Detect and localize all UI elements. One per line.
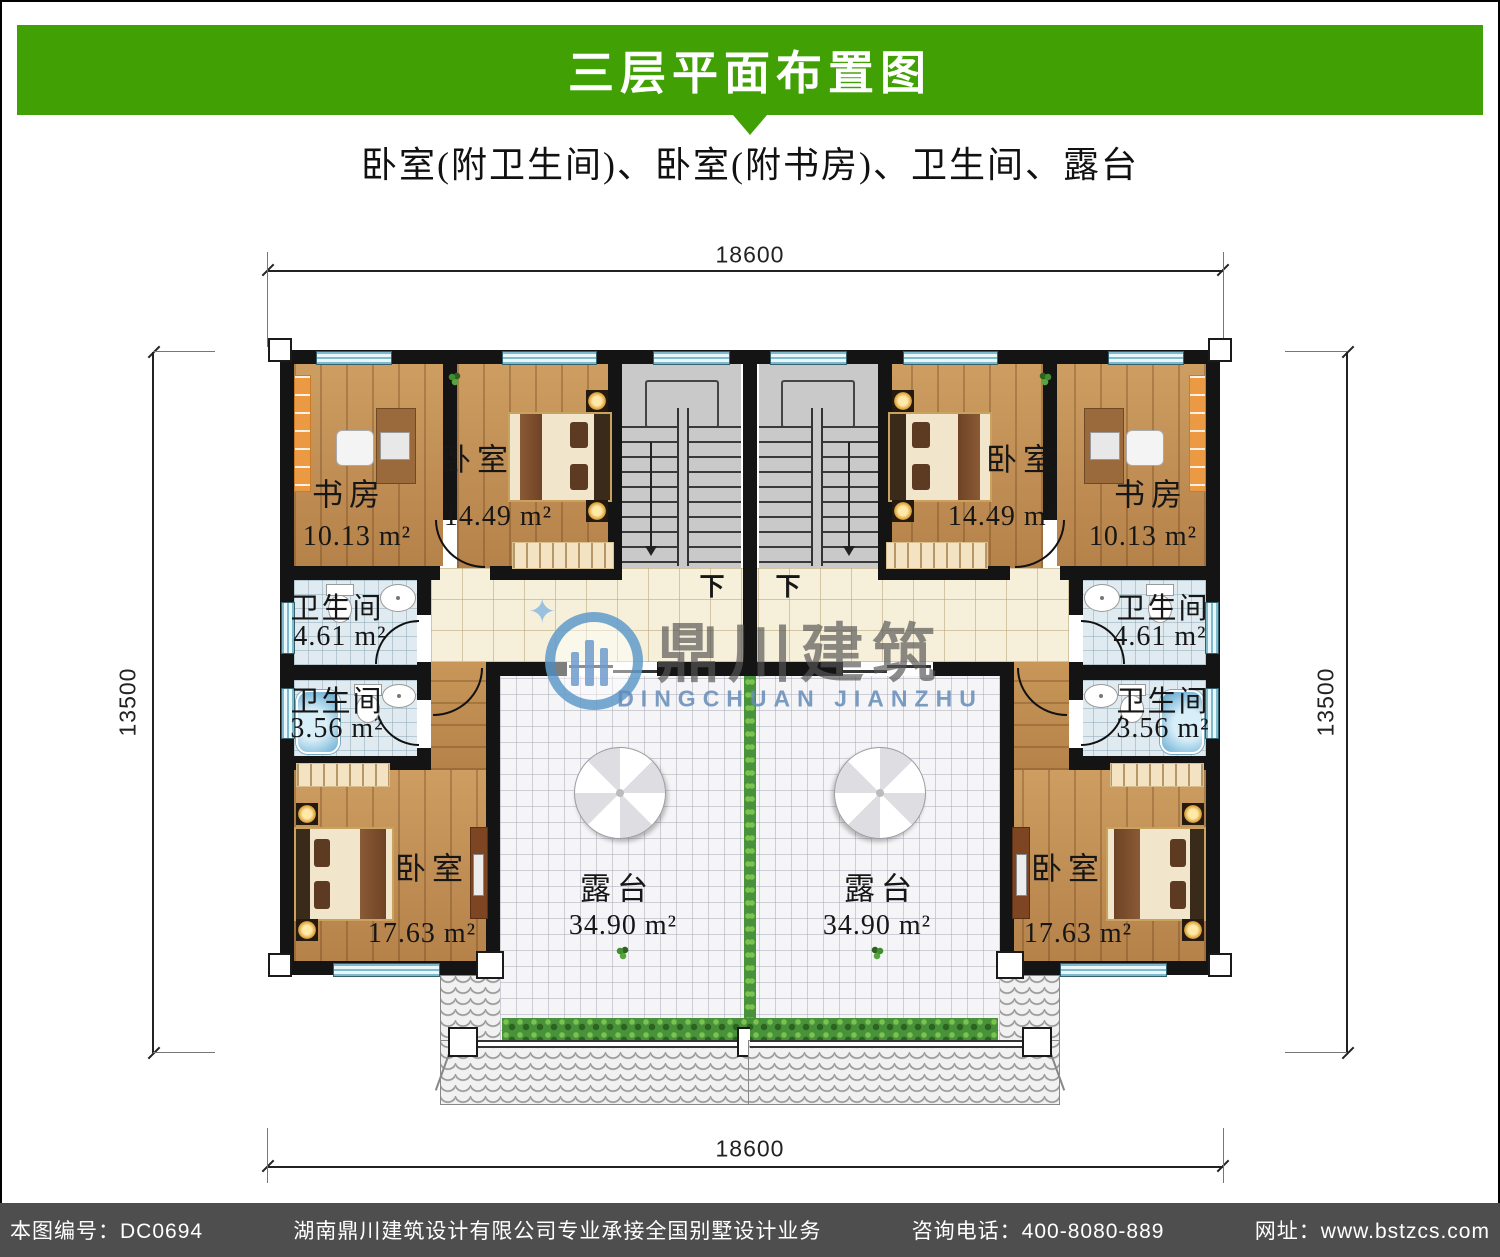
dim-tick — [148, 1047, 161, 1060]
room-area-bath-small-right: 3.56 m² — [1116, 713, 1209, 745]
bed-headboard — [1190, 829, 1204, 919]
room-area-bath-small-left: 3.56 m² — [290, 713, 383, 745]
sliding-door — [569, 665, 613, 668]
wall-lamp-icon — [296, 919, 318, 941]
computer-icon — [380, 432, 410, 460]
stair-down-label-right: 下 — [775, 567, 800, 603]
dim-tick — [148, 346, 161, 359]
bed-blanket — [1114, 829, 1140, 919]
window — [333, 963, 440, 977]
window — [653, 351, 730, 365]
wall-outer-left — [1206, 350, 1220, 975]
room-label-terrace-right: 露台 — [844, 864, 918, 909]
plant-icon — [870, 946, 884, 960]
pillow — [912, 464, 930, 490]
wall-study-bottom — [280, 566, 440, 580]
room-label-study-left: 书房 — [312, 470, 386, 515]
tv-icon — [473, 854, 484, 896]
dim-ext — [1223, 252, 1224, 347]
bed — [294, 827, 394, 921]
plant-icon — [616, 946, 630, 960]
terrace-railing — [750, 1040, 1045, 1048]
wall-unit-divider — [750, 350, 757, 676]
pillow — [912, 422, 930, 448]
bed-blanket — [520, 414, 542, 500]
window — [1108, 351, 1184, 365]
dim-line-bottom — [267, 1166, 1223, 1168]
hallway-floor — [757, 568, 1069, 662]
bed — [1106, 827, 1206, 921]
wall-bath-right — [417, 566, 431, 615]
sink-icon — [1084, 684, 1118, 708]
dim-ext — [1285, 1052, 1347, 1053]
dim-left-value: 13500 — [115, 668, 142, 737]
wall-lamp-icon — [892, 390, 914, 412]
pillow — [570, 464, 588, 490]
terrace-floor — [750, 662, 1000, 1042]
bed-headboard — [594, 414, 610, 500]
title-banner: 三层平面布置图 — [17, 25, 1483, 115]
room-area-bedroom-bottom-right: 17.63 m² — [1024, 918, 1132, 950]
room-label-bedroom-top-right: 卧室 — [986, 435, 1060, 480]
corner-post — [476, 951, 504, 979]
dim-ext — [1223, 1128, 1224, 1183]
wall-lamp-icon — [1182, 803, 1204, 825]
plant-icon — [1038, 372, 1052, 386]
window — [903, 351, 998, 365]
rug — [886, 542, 988, 569]
pillow — [1170, 881, 1186, 909]
computer-icon — [1090, 432, 1120, 460]
terrace-hedge-divider — [750, 665, 756, 1042]
bed-blanket — [360, 829, 386, 919]
stair-down-arrowhead — [645, 546, 657, 556]
room-label-bedroom-top-left: 卧室 — [440, 435, 514, 480]
dim-bottom-value: 18600 — [716, 1136, 785, 1163]
corner-post — [996, 951, 1024, 979]
room-area-bath-large-left: 4.61 m² — [293, 621, 386, 653]
page-subtitle: 卧室(附卫生间)、卧室(附书房)、卫生间、露台 — [361, 136, 1139, 188]
wall-study-bottom — [1060, 566, 1220, 580]
stair-down-arrow — [650, 442, 652, 546]
terrace-floor — [500, 662, 750, 1042]
wall-lamp-icon — [586, 390, 608, 412]
terrace-post — [1022, 1027, 1052, 1057]
bookshelf — [294, 375, 311, 492]
window — [1060, 963, 1167, 977]
dim-tick — [1342, 346, 1355, 359]
footer-company: 湖南鼎川建筑设计有限公司专业承接全国别墅设计业务 — [293, 1215, 821, 1245]
plan-canvas — [280, 350, 1220, 1105]
window — [316, 351, 392, 365]
bookshelf — [1189, 375, 1206, 492]
rug — [1110, 763, 1204, 787]
terrace-hedge-bottom — [750, 1018, 998, 1040]
dim-line-right — [1346, 352, 1348, 1053]
dim-right-value: 13500 — [1313, 668, 1340, 737]
room-area-bedroom-top-right: 14.49 m² — [948, 501, 1056, 533]
footer-sheet-no: 本图编号：DC0694 — [10, 1215, 203, 1245]
stair-down-arrow — [848, 442, 850, 546]
chair — [1126, 430, 1164, 466]
wall-terrace-top — [657, 662, 743, 676]
sink-icon — [380, 584, 416, 612]
floor-plan-sheet: 三层平面布置图 卧室(附卫生间)、卧室(附书房)、卫生间、露台 18600 18… — [0, 0, 1500, 1257]
room-label-bedroom-bottom-left: 卧室 — [395, 844, 469, 889]
terrace-hedge-bottom — [502, 1018, 750, 1040]
dim-ext — [267, 252, 268, 347]
dim-top-value: 18600 — [716, 242, 785, 269]
wall-lamp-icon — [1182, 919, 1204, 941]
pillow — [314, 839, 330, 867]
wall-terrace-side — [1000, 662, 1014, 975]
room-label-study-right: 书房 — [1114, 470, 1188, 515]
footer-bar: 本图编号：DC0694 湖南鼎川建筑设计有限公司专业承接全国别墅设计业务 咨询电… — [0, 1203, 1500, 1257]
wall-outer-left — [280, 350, 294, 975]
pillow — [570, 422, 588, 448]
room-label-terrace-left: 露台 — [580, 864, 654, 909]
dim-ext — [153, 351, 215, 352]
bed — [508, 412, 612, 502]
wall-terrace-top — [757, 662, 843, 676]
pillow — [314, 881, 330, 909]
room-area-bedroom-top-left: 14.49 m² — [444, 501, 552, 533]
sink-icon — [382, 684, 416, 708]
corner-post — [268, 953, 292, 977]
sliding-door — [887, 665, 931, 668]
roof-eave — [440, 1040, 752, 1105]
terrace-railing — [455, 1040, 750, 1048]
stair-down-label-left: 下 — [699, 567, 724, 603]
room-area-terrace-right: 34.90 m² — [823, 910, 931, 942]
window — [502, 351, 597, 365]
room-area-study-right: 10.13 m² — [1089, 521, 1197, 553]
umbrella-icon — [574, 747, 666, 839]
bed-headboard — [296, 829, 310, 919]
stair-rail — [811, 408, 823, 566]
wall-terrace-side — [486, 662, 500, 975]
tv-icon — [1016, 854, 1027, 896]
sliding-door — [843, 670, 887, 673]
rug — [512, 542, 614, 569]
wall-terrace-top — [933, 662, 1000, 676]
sliding-door — [613, 670, 657, 673]
footer-website: 网址：www.bstzcs.com — [1255, 1215, 1490, 1245]
rug — [296, 763, 390, 787]
chair — [336, 430, 374, 466]
terrace-post — [448, 1027, 478, 1057]
bed — [888, 412, 992, 502]
dim-ext — [1285, 351, 1347, 352]
wall-terrace-top — [500, 662, 567, 676]
pillow — [1170, 839, 1186, 867]
dim-line-left — [152, 352, 154, 1053]
bed-blanket — [958, 414, 980, 500]
umbrella-icon — [834, 747, 926, 839]
window — [770, 351, 847, 365]
room-area-bath-large-right: 4.61 m² — [1113, 621, 1206, 653]
dim-tick — [1342, 1047, 1355, 1060]
roof-eave — [748, 1040, 1060, 1105]
corner-post — [1208, 953, 1232, 977]
plant-icon — [448, 372, 462, 386]
stair-down-arrowhead — [843, 546, 855, 556]
dim-line-top — [267, 270, 1223, 272]
wall-bath-right — [1069, 566, 1083, 615]
wall-lamp-icon — [296, 803, 318, 825]
corner-post — [1208, 338, 1232, 362]
room-area-bedroom-bottom-left: 17.63 m² — [368, 918, 476, 950]
corner-post — [268, 338, 292, 362]
room-area-study-left: 10.13 m² — [303, 521, 411, 553]
sink-icon — [1084, 584, 1120, 612]
hallway-floor — [431, 568, 743, 662]
wall-lamp-icon — [892, 500, 914, 522]
bed-headboard — [890, 414, 906, 500]
wall-unit-divider — [743, 350, 750, 676]
room-area-terrace-left: 34.90 m² — [569, 910, 677, 942]
dim-ext — [267, 1128, 268, 1183]
page-title: 三层平面布置图 — [568, 37, 932, 103]
stair-rail — [677, 408, 689, 566]
banner-pointer-icon — [733, 115, 767, 135]
dim-ext — [153, 1052, 215, 1053]
footer-phone: 咨询电话：400-8080-889 — [912, 1215, 1165, 1245]
room-label-bedroom-bottom-right: 卧室 — [1031, 844, 1105, 889]
wall-lamp-icon — [586, 500, 608, 522]
